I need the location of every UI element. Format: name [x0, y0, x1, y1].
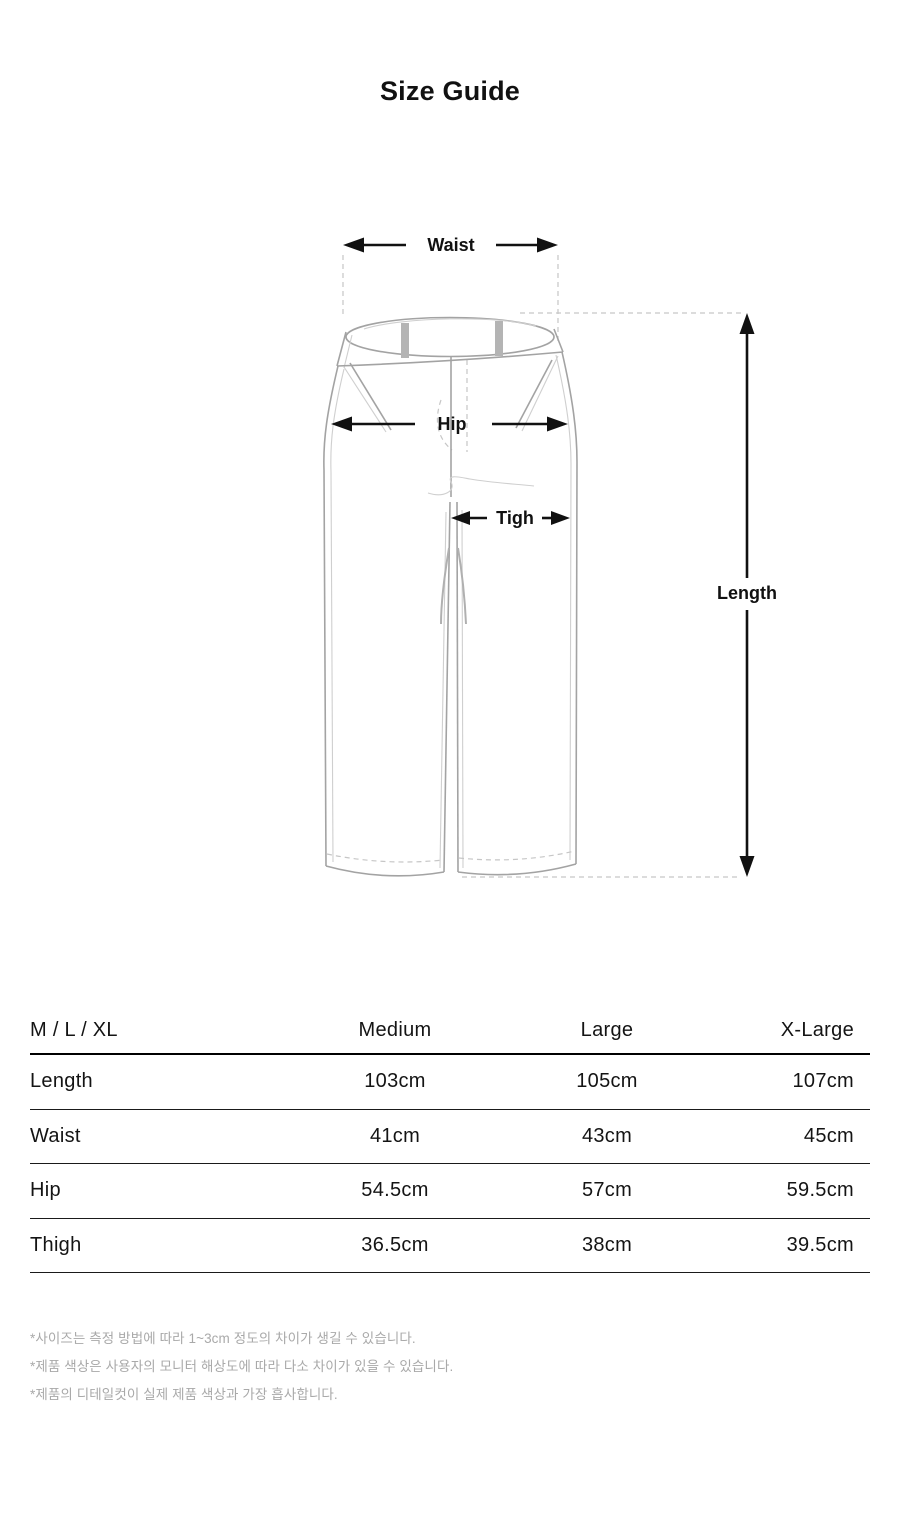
length-arrow-label: Length: [717, 583, 777, 603]
cell-value: 105cm: [501, 1070, 713, 1093]
belt-loop-right: [495, 321, 503, 356]
cell-value: 57cm: [501, 1179, 713, 1202]
belt-loop-left: [401, 323, 409, 358]
size-table-header: M / L / XL Medium Large X-Large: [30, 1008, 870, 1055]
pants-measurement-diagram: Waist Hip Tigh Length: [0, 0, 900, 950]
cell-value: 36.5cm: [289, 1234, 501, 1257]
table-row-length: Length 103cm 105cm 107cm: [30, 1055, 870, 1110]
length-arrow: Length: [717, 313, 777, 877]
sizes-header-label: M / L / XL: [30, 1019, 289, 1042]
cell-value: 107cm: [713, 1070, 870, 1093]
row-label: Waist: [30, 1125, 289, 1148]
size-guide-page: Size Guide: [0, 0, 900, 1527]
waist-arrow-label: Waist: [427, 235, 474, 255]
thigh-arrow-label: Tigh: [496, 508, 534, 528]
cell-value: 43cm: [501, 1125, 713, 1148]
column-header-xlarge: X-Large: [713, 1019, 870, 1042]
thigh-arrow: Tigh: [451, 508, 570, 528]
row-label: Length: [30, 1070, 289, 1093]
table-row-waist: Waist 41cm 43cm 45cm: [30, 1110, 870, 1165]
footnote-detail-cut: *제품의 디테일컷이 실제 제품 색상과 가장 흡사합니다.: [30, 1381, 453, 1409]
waist-arrow: Waist: [343, 235, 558, 255]
column-header-large: Large: [501, 1019, 713, 1042]
footnote-monitor-color: *제품 색상은 사용자의 모니터 해상도에 따라 다소 차이가 있을 수 있습니…: [30, 1353, 453, 1381]
pants-outline: [324, 318, 577, 876]
cell-value: 41cm: [289, 1125, 501, 1148]
footnote-size-tolerance: *사이즈는 측정 방법에 따라 1~3cm 정도의 차이가 생길 수 있습니다.: [30, 1325, 453, 1353]
column-header-medium: Medium: [289, 1019, 501, 1042]
hip-arrow: Hip: [331, 414, 568, 434]
table-row-hip: Hip 54.5cm 57cm 59.5cm: [30, 1164, 870, 1219]
hip-arrow-label: Hip: [438, 414, 467, 434]
cell-value: 103cm: [289, 1070, 501, 1093]
cell-value: 54.5cm: [289, 1179, 501, 1202]
row-label: Hip: [30, 1179, 289, 1202]
row-label: Thigh: [30, 1234, 289, 1257]
table-row-thigh: Thigh 36.5cm 38cm 39.5cm: [30, 1219, 870, 1274]
footnotes: *사이즈는 측정 방법에 따라 1~3cm 정도의 차이가 생길 수 있습니다.…: [30, 1325, 453, 1409]
size-table: M / L / XL Medium Large X-Large Length 1…: [30, 1008, 870, 1273]
cell-value: 39.5cm: [713, 1234, 870, 1257]
cell-value: 45cm: [713, 1125, 870, 1148]
cell-value: 59.5cm: [713, 1179, 870, 1202]
cell-value: 38cm: [501, 1234, 713, 1257]
